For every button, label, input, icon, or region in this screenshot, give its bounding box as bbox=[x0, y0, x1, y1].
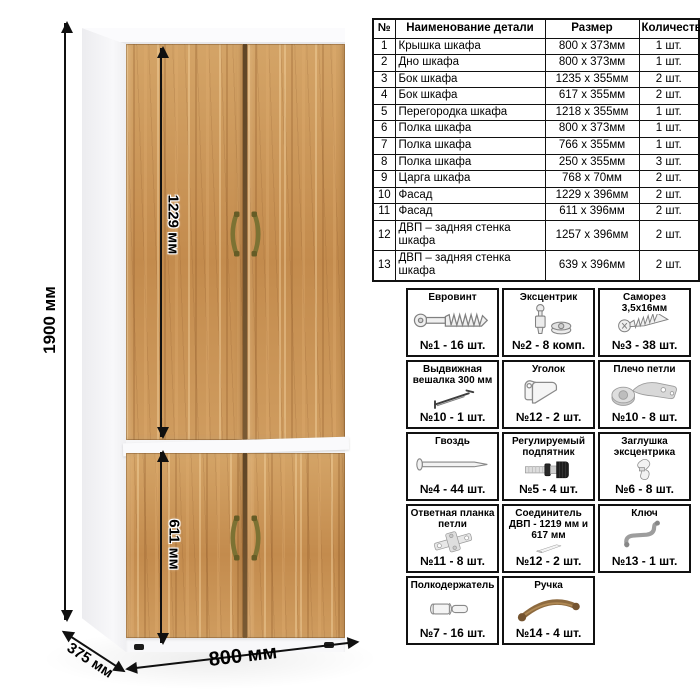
hdf-connector-icon bbox=[504, 542, 593, 554]
hardware-item-count: №5 - 4 шт. bbox=[519, 482, 578, 499]
table-cell: 1257 x 396мм bbox=[545, 220, 639, 250]
table-cell: 10 bbox=[373, 187, 395, 204]
upper-left-door-handle-icon bbox=[227, 210, 240, 258]
wardrobe-foot bbox=[134, 644, 144, 650]
table-cell: 5 bbox=[373, 104, 395, 121]
hinge-plate-icon bbox=[408, 530, 497, 554]
table-row: 11Фасад611 x 396мм2 шт. bbox=[373, 204, 699, 221]
cam-lock-icon bbox=[504, 303, 593, 338]
hardware-item-count: №12 - 2 шт. bbox=[516, 410, 582, 427]
lower-door-dimension-arrow bbox=[160, 452, 162, 643]
upper-door-height-label: 1229 мм bbox=[165, 165, 182, 285]
hardware-item-count: №7 - 16 шт. bbox=[420, 626, 486, 643]
table-cell: 2 bbox=[373, 55, 395, 72]
lower-right-door-handle-icon bbox=[251, 514, 264, 562]
hardware-item: Эксцентрик№2 - 8 комп. bbox=[502, 288, 595, 357]
hardware-item-count: №1 - 16 шт. bbox=[420, 338, 486, 355]
table-row: 13ДВП – задняя стенка шкафа639 x 396мм2 … bbox=[373, 250, 699, 281]
table-cell: Царга шкафа bbox=[395, 171, 545, 188]
table-row: 8Полка шкафа250 x 355мм3 шт. bbox=[373, 154, 699, 171]
lower-left-door bbox=[126, 453, 243, 638]
table-cell: 9 bbox=[373, 171, 395, 188]
table-cell: ДВП – задняя стенка шкафа bbox=[395, 250, 545, 281]
total-height-label: 1900 мм bbox=[40, 240, 60, 400]
table-cell: 2 шт. bbox=[639, 71, 699, 88]
table-cell: Перегородка шкафа bbox=[395, 104, 545, 121]
table-cell: 768 x 70мм bbox=[545, 171, 639, 188]
table-cell: 766 x 355мм bbox=[545, 137, 639, 154]
table-cell: 611 x 396мм bbox=[545, 204, 639, 221]
table-row: 7Полка шкафа766 x 355мм1 шт. bbox=[373, 137, 699, 154]
hardware-item-title: Выдвижная вешалка 300 мм bbox=[408, 362, 497, 386]
table-cell: 12 bbox=[373, 220, 395, 250]
adjustable-foot-icon bbox=[504, 458, 593, 482]
table-cell: 1229 x 396мм bbox=[545, 187, 639, 204]
table-cell: 1218 x 355мм bbox=[545, 104, 639, 121]
hardware-item-title: Уголок bbox=[531, 362, 566, 375]
table-row: 3Бок шкафа1235 x 355мм2 шт. bbox=[373, 71, 699, 88]
hardware-item-title: Регулируемый подпятник bbox=[504, 434, 593, 458]
table-cell: 13 bbox=[373, 250, 395, 281]
hardware-item-title: Эксцентрик bbox=[519, 290, 578, 303]
hardware-item-count: №3 - 38 шт. bbox=[612, 338, 678, 355]
hardware-item-count: №12 - 2 шт. bbox=[516, 554, 582, 571]
table-row: 12ДВП – задняя стенка шкафа1257 x 396мм2… bbox=[373, 220, 699, 250]
hardware-item-title: Гвоздь bbox=[434, 434, 471, 447]
hardware-item-count: №10 - 1 шт. bbox=[420, 410, 486, 427]
table-cell: 3 шт. bbox=[639, 154, 699, 171]
hardware-item: Полкодержатель№7 - 16 шт. bbox=[406, 576, 499, 645]
hardware-item-title: Саморез 3,5х16мм bbox=[600, 290, 689, 314]
hardware-item-count: №4 - 44 шт. bbox=[420, 482, 486, 499]
table-cell: 800 x 373мм bbox=[545, 121, 639, 138]
table-cell: Дно шкафа bbox=[395, 55, 545, 72]
hardware-item: Выдвижная вешалка 300 мм№10 - 1 шт. bbox=[406, 360, 499, 429]
parts-table-body: 1Крышка шкафа800 x 373мм1 шт.2Дно шкафа8… bbox=[373, 38, 699, 281]
table-cell: Фасад bbox=[395, 187, 545, 204]
hardware-item-count: №11 - 8 шт. bbox=[420, 554, 485, 571]
table-cell: 1 шт. bbox=[639, 121, 699, 138]
hardware-item-title: Ключ bbox=[630, 506, 658, 519]
table-cell: 3 bbox=[373, 71, 395, 88]
hardware-item-title: Заглушка эксцентрика bbox=[600, 434, 689, 458]
upper-right-door-handle-icon bbox=[251, 210, 264, 258]
table-cell: 2 шт. bbox=[639, 171, 699, 188]
table-cell: Бок шкафа bbox=[395, 71, 545, 88]
table-cell: Полка шкафа bbox=[395, 121, 545, 138]
hardware-item: Ручка№14 - 4 шт. bbox=[502, 576, 595, 645]
table-cell: 639 x 396мм bbox=[545, 250, 639, 281]
table-cell: 7 bbox=[373, 137, 395, 154]
header-quantity: Количество bbox=[639, 19, 699, 38]
table-cell: 617 x 355мм bbox=[545, 88, 639, 105]
table-cell: 1 шт. bbox=[639, 38, 699, 55]
hardware-item: Регулируемый подпятник№5 - 4 шт. bbox=[502, 432, 595, 501]
nail-icon bbox=[408, 447, 497, 482]
hinge-arm-icon bbox=[600, 375, 689, 410]
table-row: 5Перегородка шкафа1218 x 355мм1 шт. bbox=[373, 104, 699, 121]
lower-left-door-handle-icon bbox=[227, 514, 240, 562]
hardware-item: Ключ№13 - 1 шт. bbox=[598, 504, 691, 573]
handle-icon bbox=[504, 591, 593, 626]
table-row: 6Полка шкафа800 x 373мм1 шт. bbox=[373, 121, 699, 138]
header-number: № bbox=[373, 19, 395, 38]
table-row: 10Фасад1229 x 396мм2 шт. bbox=[373, 187, 699, 204]
hardware-item-count: №6 - 8 шт. bbox=[615, 482, 674, 499]
lower-door-gap bbox=[243, 453, 247, 638]
hardware-item-count: №13 - 1 шт. bbox=[612, 554, 678, 571]
table-cell: 2 шт. bbox=[639, 187, 699, 204]
table-cell: 4 bbox=[373, 88, 395, 105]
table-cell: Полка шкафа bbox=[395, 154, 545, 171]
hardware-item-title: Полкодержатель bbox=[410, 578, 496, 591]
hardware-item: Соединитель ДВП - 1219 мм и 617 мм№12 - … bbox=[502, 504, 595, 573]
hardware-item-title: Соединитель ДВП - 1219 мм и 617 мм bbox=[504, 506, 593, 542]
table-cell: 1235 x 355мм bbox=[545, 71, 639, 88]
hardware-item: Ответная планка петли№11 - 8 шт. bbox=[406, 504, 499, 573]
hardware-item: Уголок№12 - 2 шт. bbox=[502, 360, 595, 429]
table-cell: 1 шт. bbox=[639, 104, 699, 121]
upper-left-door bbox=[126, 44, 243, 440]
height-dimension-arrow bbox=[64, 23, 66, 620]
table-cell: 8 bbox=[373, 154, 395, 171]
cam-cap-icon bbox=[600, 458, 689, 482]
table-cell: 6 bbox=[373, 121, 395, 138]
lower-door-height-label: 611 мм bbox=[166, 495, 183, 595]
table-row: 4Бок шкафа617 x 355мм2 шт. bbox=[373, 88, 699, 105]
wardrobe-top-panel bbox=[82, 28, 345, 44]
header-part-name: Наименование детали bbox=[395, 19, 545, 38]
table-cell: Фасад bbox=[395, 204, 545, 221]
parts-table-header-row: № Наименование детали Размер Количество bbox=[373, 19, 699, 38]
table-cell: 2 шт. bbox=[639, 220, 699, 250]
table-cell: 2 шт. bbox=[639, 204, 699, 221]
table-row: 9Царга шкафа768 x 70мм2 шт. bbox=[373, 171, 699, 188]
table-cell: ДВП – задняя стенка шкафа bbox=[395, 220, 545, 250]
table-cell: 2 шт. bbox=[639, 250, 699, 281]
table-row: 2Дно шкафа800 x 373мм1 шт. bbox=[373, 55, 699, 72]
assembly-instruction-sheet: 1900 мм 1229 мм 611 мм 375 мм 800 мм № Н… bbox=[0, 0, 700, 700]
hardware-item: Плечо петли№10 - 8 шт. bbox=[598, 360, 691, 429]
hardware-grid: Евровинт№1 - 16 шт.Эксцентрик№2 - 8 комп… bbox=[406, 288, 691, 645]
table-row: 1Крышка шкафа800 x 373мм1 шт. bbox=[373, 38, 699, 55]
hardware-item: Гвоздь№4 - 44 шт. bbox=[406, 432, 499, 501]
corner-bracket-icon bbox=[504, 375, 593, 410]
table-cell: Бок шкафа bbox=[395, 88, 545, 105]
hardware-item: Евровинт№1 - 16 шт. bbox=[406, 288, 499, 357]
wardrobe-front bbox=[126, 44, 345, 652]
table-cell: 250 x 355мм bbox=[545, 154, 639, 171]
hardware-item-count: №10 - 8 шт. bbox=[612, 410, 678, 427]
wardrobe-side-panel bbox=[82, 28, 126, 652]
table-cell: 1 шт. bbox=[639, 137, 699, 154]
hardware-item-title: Ответная планка петли bbox=[408, 506, 497, 530]
table-cell: 800 x 373мм bbox=[545, 55, 639, 72]
shelf-pin-icon bbox=[408, 591, 497, 626]
header-size: Размер bbox=[545, 19, 639, 38]
hardware-item-title: Евровинт bbox=[427, 290, 477, 303]
table-cell: 800 x 373мм bbox=[545, 38, 639, 55]
table-cell: 1 шт. bbox=[639, 55, 699, 72]
table-cell: 1 bbox=[373, 38, 395, 55]
table-cell: Крышка шкафа bbox=[395, 38, 545, 55]
hardware-item-title: Плечо петли bbox=[612, 362, 676, 375]
table-cell: Полка шкафа bbox=[395, 137, 545, 154]
table-cell: 11 bbox=[373, 204, 395, 221]
hardware-item-title: Ручка bbox=[533, 578, 564, 591]
upper-door-dimension-arrow bbox=[160, 48, 162, 437]
hardware-item-count: №2 - 8 комп. bbox=[512, 338, 585, 355]
hardware-item: Саморез 3,5х16мм№3 - 38 шт. bbox=[598, 288, 691, 357]
hardware-item: Заглушка эксцентрика№6 - 8 шт. bbox=[598, 432, 691, 501]
hardware-item-count: №14 - 4 шт. bbox=[516, 626, 582, 643]
upper-door-gap bbox=[243, 44, 247, 440]
euro-screw-icon bbox=[408, 303, 497, 338]
self-tapping-screw-icon bbox=[600, 314, 689, 338]
table-cell: 2 шт. bbox=[639, 88, 699, 105]
hex-key-icon bbox=[600, 519, 689, 554]
pullout-hanger-icon bbox=[408, 386, 497, 410]
parts-table: № Наименование детали Размер Количество … bbox=[372, 18, 700, 282]
